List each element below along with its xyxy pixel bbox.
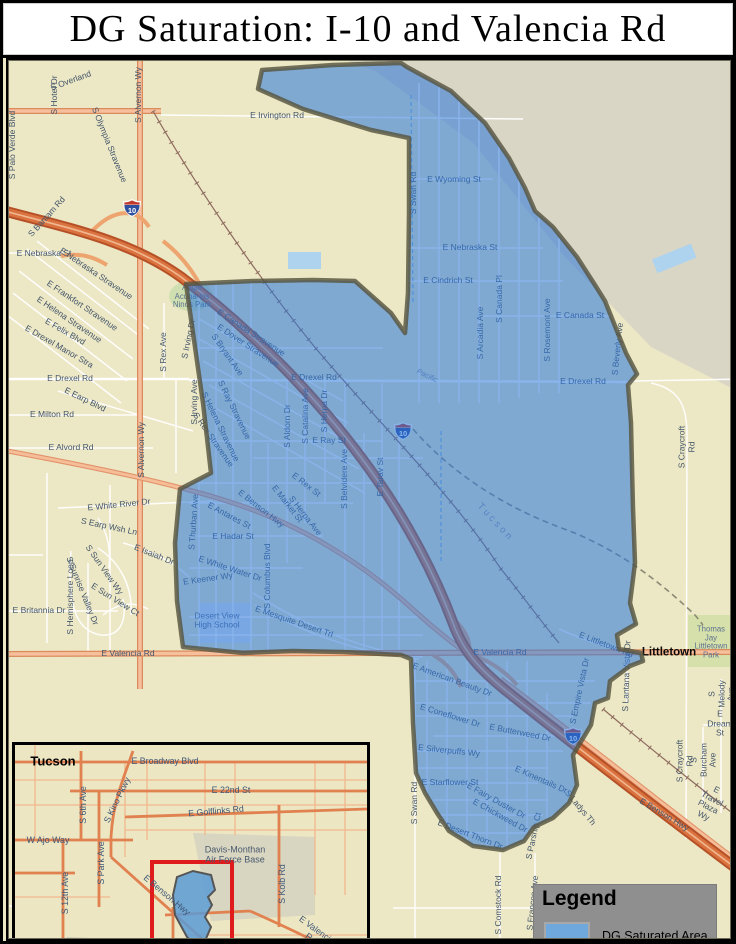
street-label: S Comstock Rd: [494, 875, 504, 934]
street-label: E Keener Wy: [183, 571, 234, 587]
street-label: S 12th Ave: [60, 872, 70, 914]
legend-title: Legend: [542, 887, 617, 911]
street-label: E Irvington Rd: [250, 111, 304, 121]
street-label: S Alvernon Way: [170, 940, 180, 941]
street-label: E Travel Plaza Wy: [688, 779, 731, 826]
street-label: E Nebraska St: [443, 243, 498, 253]
street-label: S Columbus Blvd: [263, 543, 273, 608]
street-label: Davis-Monthan Air Force Base: [205, 845, 266, 866]
inset-labels-layer: TucsonE Broadway BlvdE 22nd StE Golflink…: [15, 745, 367, 941]
map-document: DG Saturation: I-10 and Valencia Rd 10: [0, 0, 736, 944]
street-label: S Craycroft Rd: [677, 421, 696, 473]
street-label: E Tarav St: [376, 457, 386, 496]
street-label: S Belvidere Ave: [340, 449, 350, 509]
street-label: Desert View High School: [194, 612, 239, 631]
street-label: E American Beauty Dr: [411, 661, 493, 699]
main-map: 10: [6, 58, 733, 941]
street-label: S Alvernon Wy: [137, 422, 147, 478]
street-label: S Olympia Stravenue: [90, 106, 129, 184]
street-label: S Arcadia Ave: [476, 307, 486, 360]
street-label: E Coneflower Dr: [419, 702, 481, 729]
street-label: S Kolb Rd: [277, 864, 287, 904]
street-label: E Dream St: [707, 710, 733, 739]
legend-swatch-dg-saturated: [544, 922, 590, 941]
street-label: E Hadar St: [212, 532, 254, 542]
street-label: E Drexel Rd: [47, 374, 93, 384]
street-label: S Kino Pkwy: [102, 776, 133, 825]
street-label: E Alvord Rd: [49, 443, 94, 453]
street-label: E Drexel Rd: [291, 373, 337, 383]
map-title: DG Saturation: I-10 and Valencia Rd: [70, 7, 667, 51]
street-label: S Swan Rd: [410, 782, 420, 825]
place-label: Littletown: [642, 647, 696, 660]
street-label: S Irving Dr: [180, 318, 198, 359]
street-label: E Broadway Blvd: [132, 756, 199, 766]
street-label: E Britannia Dr: [13, 606, 66, 616]
street-label: S Parsnip Ct: [524, 812, 543, 861]
street-label: S Catalina Ave: [301, 388, 311, 444]
street-label: E Cindrich St: [423, 276, 473, 286]
street-label: E Valencia Rd: [287, 910, 342, 941]
street-label: E Canada St: [556, 311, 604, 321]
street-label: S Thurban Ave: [187, 494, 200, 550]
street-label: E Valencia Rd: [101, 649, 154, 659]
street-label: S Aldorn Dr: [283, 404, 293, 447]
street-label: S Palo Verde Blvd: [8, 111, 18, 180]
street-label: S Melody Ave: [708, 680, 733, 707]
street-label: E Benson Hwy: [142, 873, 193, 918]
street-label: E Drexel Rd: [560, 377, 606, 387]
street-label: E 22nd St: [212, 785, 251, 795]
street-label: E Milton Rd: [30, 410, 74, 420]
street-label: S Park Ave: [96, 841, 106, 884]
street-label: E Wyoming St: [427, 175, 481, 185]
street-label: S Rosemont Ave: [543, 298, 553, 361]
legend: Legend DG Saturated Area: [534, 885, 716, 941]
street-label: E Desert Thorn Dr: [436, 818, 504, 852]
street-label: E Kinentails Dr: [513, 764, 568, 796]
inset-locator-map: TucsonE Broadway BlvdE 22nd StE Golflink…: [12, 742, 370, 941]
street-label: S Hotel Dr: [50, 75, 60, 114]
street-label: S Hemisphere Loop: [66, 559, 76, 634]
street-label: E Butterweed Dr: [488, 722, 551, 743]
legend-item-label: DG Saturated Area: [602, 929, 708, 941]
park-label: Angie Acuna-los Ninos Park: [173, 284, 211, 310]
street-label: E Valencia Rd: [473, 648, 526, 658]
street-label: Pacific: [415, 367, 439, 384]
street-label: S Bantam Rd: [27, 195, 68, 239]
street-label: W Ajo Way: [27, 835, 70, 845]
street-label: S Alvernon Wy: [134, 67, 144, 123]
street-label: S Empire Vista Dr: [568, 657, 591, 725]
street-label: Tucson: [474, 502, 515, 545]
street-label: E Ray St: [312, 436, 346, 446]
street-label: S Earp Wsh Ln: [80, 516, 138, 537]
street-label: S Beverly Ave: [611, 322, 626, 375]
park-label: Thomas Jay Littletown Park: [695, 626, 728, 661]
street-label: S 6th Ave: [78, 786, 88, 824]
street-label: S Swan Rd: [409, 172, 419, 215]
street-label: S Herpa Dr: [320, 390, 330, 433]
street-label: E White River Dr: [87, 497, 151, 513]
street-label: E Mesquite Desert Trl: [254, 604, 334, 640]
place-label: Tucson: [30, 755, 75, 770]
street-label: S Rex Ave: [159, 332, 169, 372]
street-label: S Canada Pl: [495, 275, 505, 323]
street-label: E Antares St: [206, 501, 252, 532]
street-label: E Isaiah Dr: [133, 543, 176, 568]
title-bar: DG Saturation: I-10 and Valencia Rd: [3, 3, 733, 58]
street-label: E Benson Hwy: [638, 797, 691, 834]
street-label: E Golflinks Rd: [188, 804, 244, 819]
street-label: S Ladys Th: [563, 789, 598, 828]
street-label: S Burcham Ave: [690, 743, 719, 778]
street-label: E Silverpuffs Wy: [418, 743, 481, 759]
